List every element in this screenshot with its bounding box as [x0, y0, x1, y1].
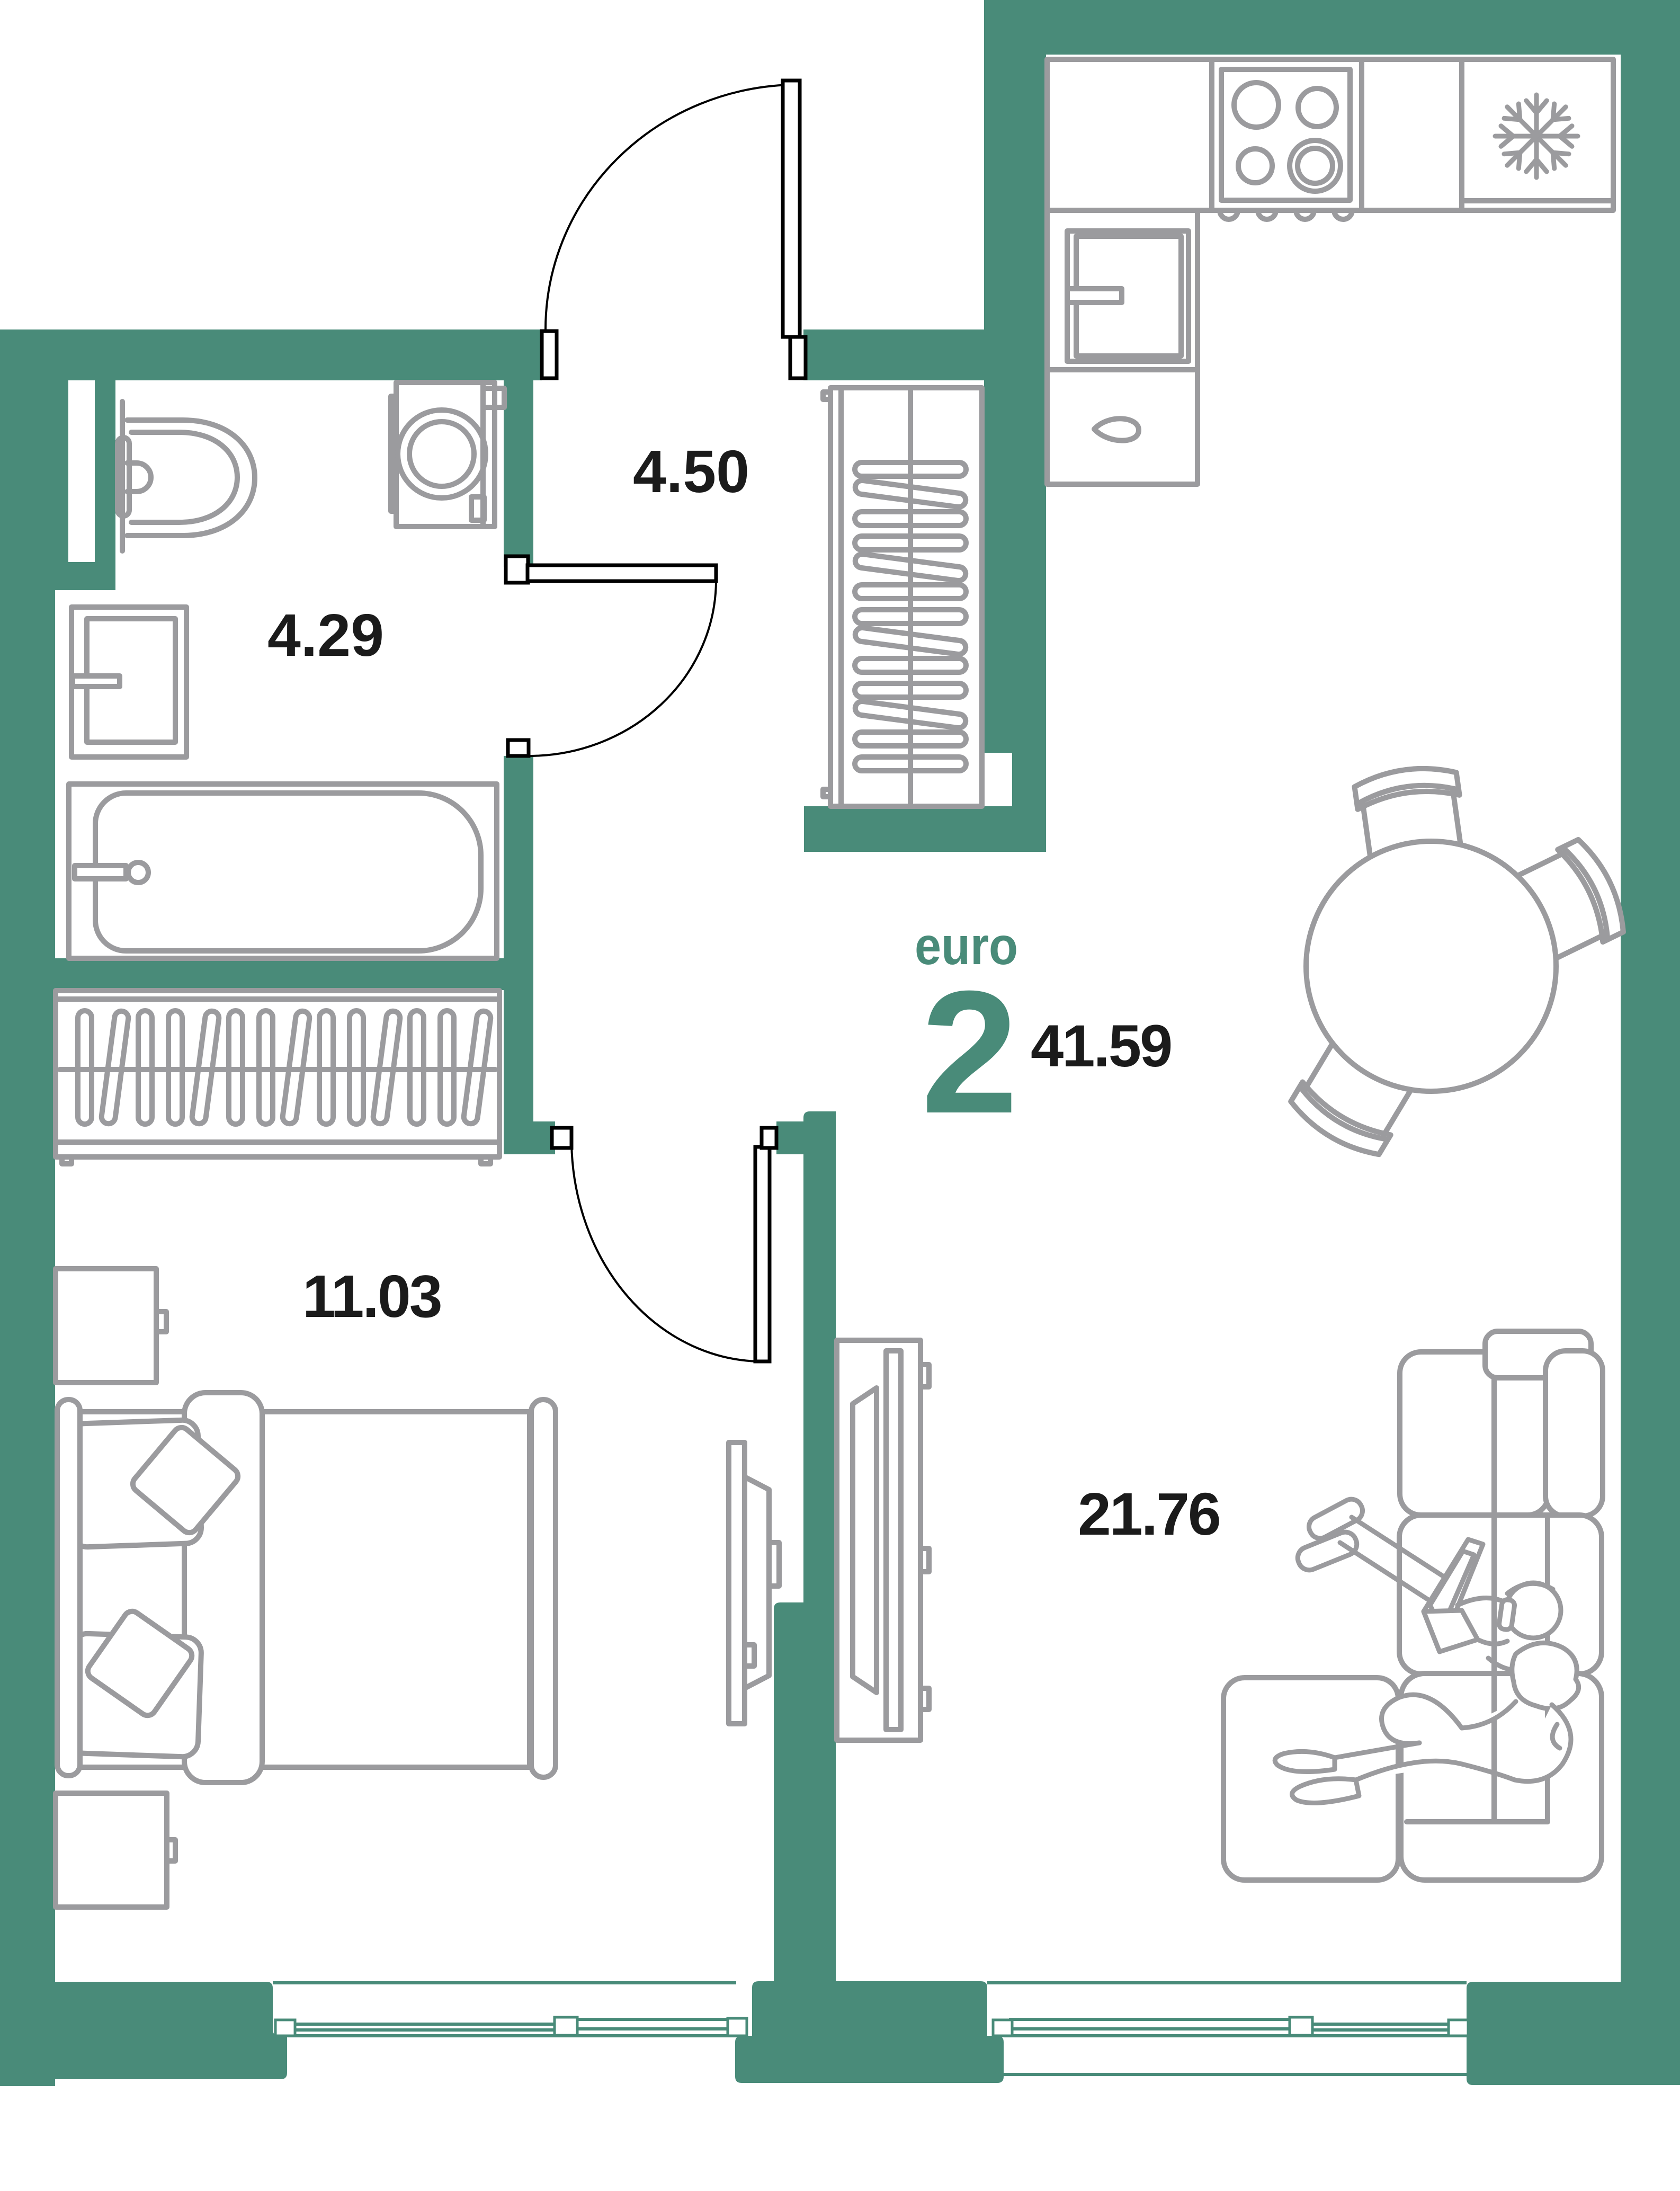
svg-text:4.29: 4.29: [267, 602, 384, 669]
svg-text:4.50: 4.50: [633, 438, 749, 505]
svg-text:41.59: 41.59: [1031, 1013, 1171, 1079]
svg-text:2: 2: [921, 954, 1018, 1150]
svg-text:21.76: 21.76: [1078, 1481, 1220, 1547]
svg-text:11.03: 11.03: [302, 1263, 441, 1330]
